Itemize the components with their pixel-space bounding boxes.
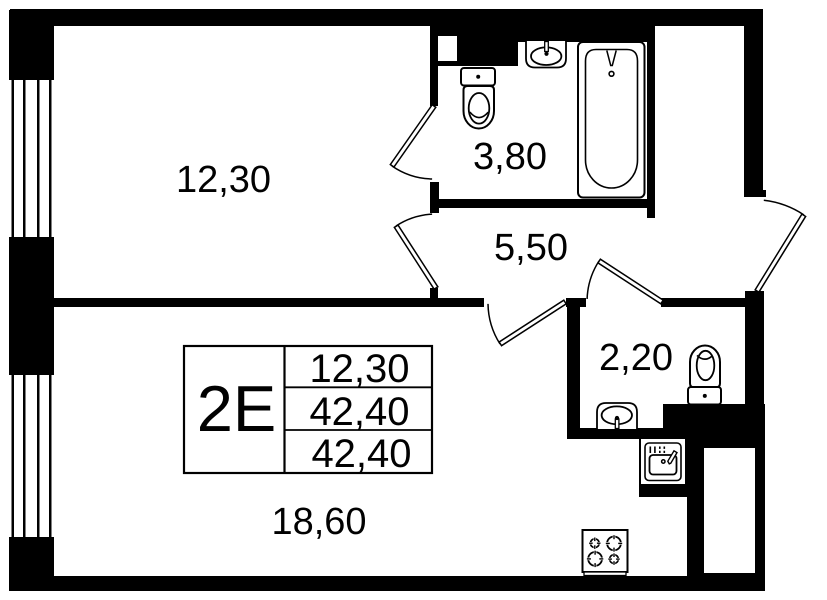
svg-text:12,30: 12,30 [176,159,271,201]
svg-text:42,40: 42,40 [311,432,411,476]
svg-text:2,20: 2,20 [599,337,673,379]
svg-text:3,80: 3,80 [473,136,547,178]
svg-text:18,60: 18,60 [271,501,366,543]
svg-text:12,30: 12,30 [309,347,409,391]
svg-text:2E: 2E [197,372,277,445]
svg-text:5,50: 5,50 [494,227,568,269]
svg-text:42,40: 42,40 [309,390,409,434]
